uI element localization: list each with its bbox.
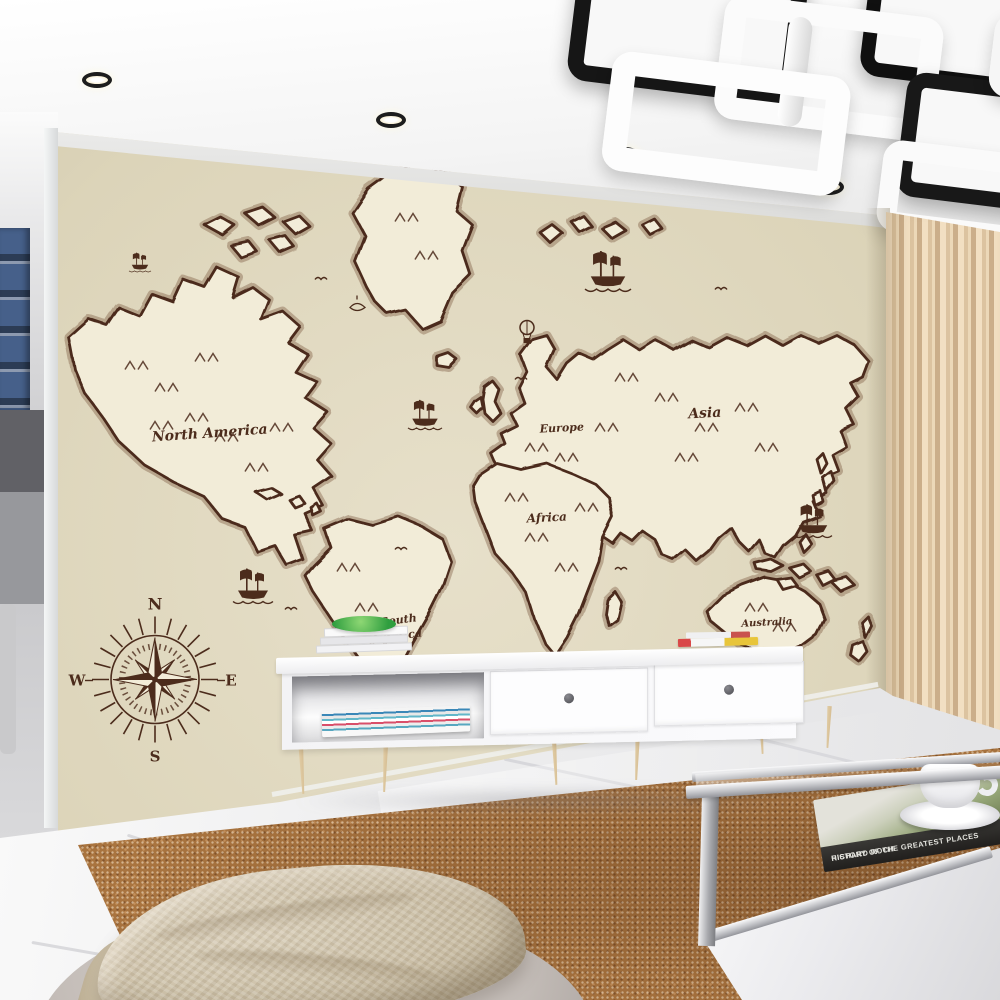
- label-asia: Asia: [686, 405, 722, 423]
- drawer-knob[interactable]: [724, 685, 734, 695]
- console-body: [282, 660, 796, 750]
- magazine-stack: [322, 705, 470, 737]
- hallway-furniture-edge: [0, 604, 16, 754]
- wall-corner-pillar: [44, 128, 58, 828]
- living-room-photo: N E S W North America South America Euro…: [0, 0, 1000, 1000]
- compass-rose: N E S W: [68, 595, 237, 766]
- label-africa: Africa: [525, 509, 567, 525]
- recessed-spotlight-icon: [376, 112, 406, 128]
- floor-pouf: [25, 845, 605, 1000]
- hallway-mid-wall: [0, 492, 46, 604]
- console-leg: [378, 742, 392, 792]
- console-drawer[interactable]: [654, 661, 804, 726]
- drawer-knob[interactable]: [564, 693, 574, 703]
- compass-w: W: [68, 672, 87, 690]
- magazines-on-top: [686, 631, 750, 638]
- coffee-table: HISTORY OF THE GREATEST PLACES RICHARD R…: [668, 742, 1000, 1000]
- ship-icon: [408, 400, 442, 430]
- grass-plant-dish: [332, 616, 396, 632]
- console-drawer[interactable]: [490, 668, 648, 736]
- compass-e: E: [225, 672, 236, 690]
- compass-s: S: [150, 748, 161, 766]
- console-open-shelf: [292, 672, 484, 742]
- console-leg: [295, 744, 310, 795]
- curtain: [886, 205, 1000, 745]
- compass-n: N: [148, 595, 163, 614]
- table-leg: [698, 796, 719, 946]
- recessed-spotlight-icon: [82, 72, 112, 88]
- whale-icon: [350, 296, 365, 311]
- label-europe: Europe: [538, 420, 584, 435]
- ship-icon: [233, 569, 273, 604]
- ship-icon: [129, 253, 151, 272]
- window-blind: [0, 228, 30, 410]
- hallway-dark-panel: [0, 410, 44, 492]
- book-author: RICHARD ROCH: [831, 844, 895, 863]
